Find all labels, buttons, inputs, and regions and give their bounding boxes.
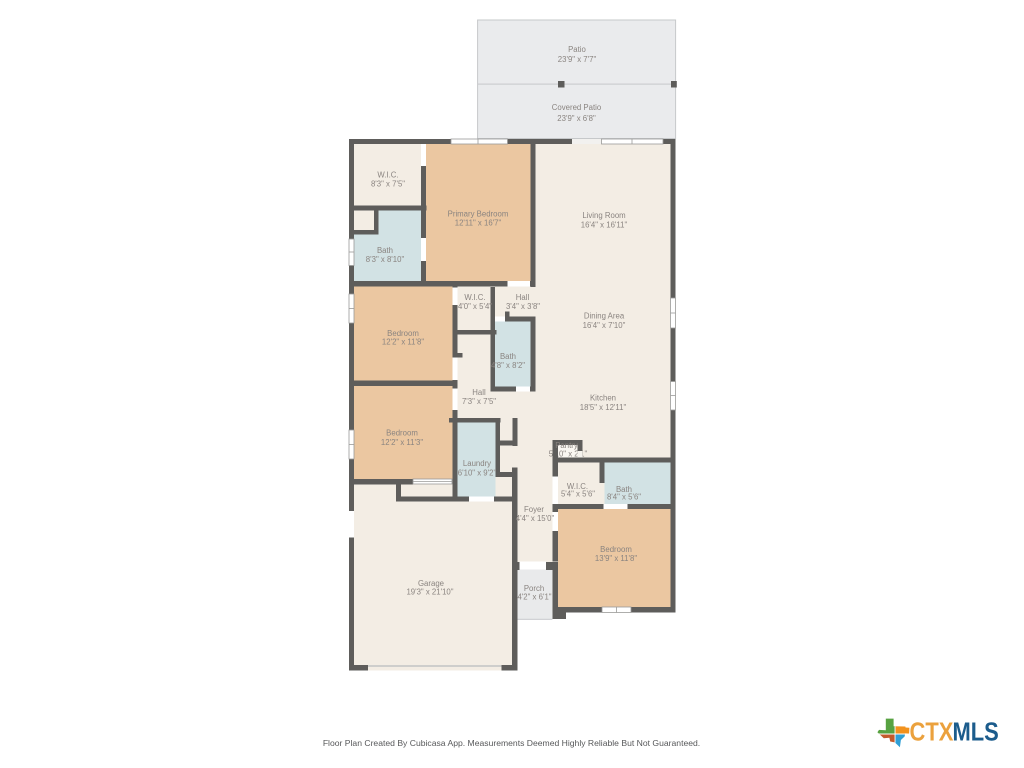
svg-text:Bedroom: Bedroom: [386, 428, 418, 437]
svg-text:19'3" x 21'10": 19'3" x 21'10": [406, 587, 453, 596]
svg-text:4'2" x 6'1": 4'2" x 6'1": [517, 592, 551, 601]
svg-text:5'4" x 5'6": 5'4" x 5'6": [561, 489, 595, 498]
svg-text:6'10" x 9'2": 6'10" x 9'2": [458, 468, 497, 477]
svg-text:3'4" x 3'8": 3'4" x 3'8": [506, 302, 540, 311]
svg-text:CTX: CTX: [910, 718, 954, 747]
svg-text:Bath: Bath: [500, 352, 516, 361]
svg-text:16'4" x 7'10": 16'4" x 7'10": [583, 321, 626, 330]
svg-text:8'4" x 5'6": 8'4" x 5'6": [607, 492, 641, 501]
svg-text:W.I.C.: W.I.C.: [464, 293, 485, 302]
svg-text:Hall: Hall: [516, 293, 530, 302]
svg-text:8'3" x 7'5": 8'3" x 7'5": [371, 180, 405, 189]
svg-text:8'3" x 8'10": 8'3" x 8'10": [366, 255, 405, 264]
svg-text:13'9" x 11'8": 13'9" x 11'8": [595, 554, 637, 563]
svg-text:4'0" x 5'4": 4'0" x 5'4": [458, 302, 492, 311]
svg-text:4'8" x 8'2": 4'8" x 8'2": [491, 361, 525, 370]
svg-text:Hall: Hall: [472, 388, 486, 397]
svg-text:Dining Area: Dining Area: [584, 311, 625, 320]
svg-text:12'2" x 11'3": 12'2" x 11'3": [381, 438, 423, 447]
svg-text:MLS: MLS: [953, 718, 999, 747]
svg-text:23'9" x 7'7": 23'9" x 7'7": [558, 55, 597, 64]
svg-text:12'2" x 11'8": 12'2" x 11'8": [382, 337, 424, 346]
svg-text:Bedroom: Bedroom: [600, 545, 632, 554]
svg-text:7'3" x 7'5": 7'3" x 7'5": [462, 397, 496, 406]
svg-text:Floor Plan Created By Cubicasa: Floor Plan Created By Cubicasa App. Meas…: [323, 738, 700, 748]
svg-text:Kitchen: Kitchen: [590, 393, 616, 402]
svg-text:4'4" x 15'0": 4'4" x 15'0": [516, 514, 555, 523]
svg-text:Covered Patio: Covered Patio: [552, 103, 602, 112]
svg-text:Foyer: Foyer: [524, 505, 544, 514]
svg-text:Pantry: Pantry: [555, 441, 578, 450]
svg-text:23'9" x 6'8": 23'9" x 6'8": [557, 114, 596, 123]
svg-text:W.I.C.: W.I.C.: [377, 171, 398, 180]
svg-text:Patio: Patio: [568, 45, 586, 54]
svg-text:12'11" x 16'7": 12'11" x 16'7": [455, 218, 502, 227]
svg-text:Bath: Bath: [377, 246, 393, 255]
svg-text:Laundry: Laundry: [463, 459, 491, 468]
svg-text:Primary Bedroom: Primary Bedroom: [448, 209, 509, 218]
svg-text:18'5" x 12'11": 18'5" x 12'11": [580, 403, 627, 412]
svg-text:Living Room: Living Room: [582, 211, 625, 220]
svg-text:16'4" x 16'11": 16'4" x 16'11": [581, 220, 628, 229]
